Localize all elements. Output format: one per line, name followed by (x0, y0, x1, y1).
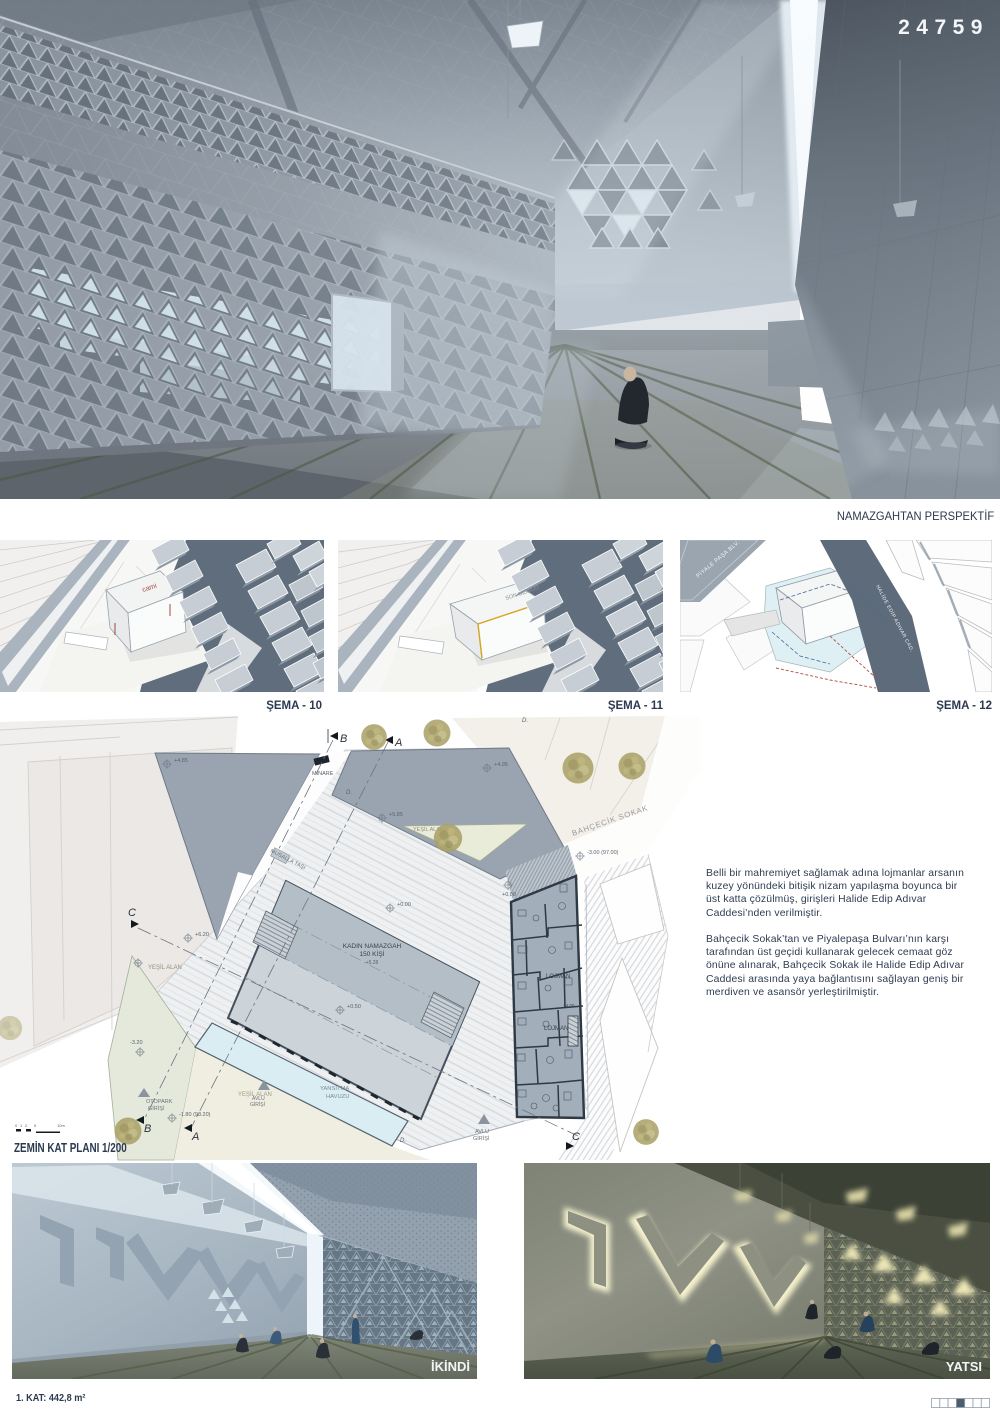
svg-text:ZEMİN KAT PLANI 1/200: ZEMİN KAT PLANI 1/200 (14, 1141, 127, 1156)
svg-text:+4.95: +4.95 (494, 762, 508, 768)
svg-text:2: 2 (25, 1123, 28, 1128)
svg-text:HAVUZU: HAVUZU (326, 1094, 349, 1100)
svg-text:D.: D. (346, 790, 352, 796)
svg-text:KADIN NAMAZGAH: KADIN NAMAZGAH (343, 943, 402, 950)
svg-text:+0.00: +0.00 (397, 902, 411, 908)
svg-text:-1.80 (98.20): -1.80 (98.20) (179, 1112, 211, 1118)
svg-text:LOJMAN: LOJMAN (546, 974, 570, 980)
svg-text:1: 1 (20, 1123, 23, 1128)
svg-text:5: 5 (34, 1123, 37, 1128)
svg-text:B: B (144, 1123, 151, 1135)
svg-text:+0.50: +0.50 (347, 1004, 361, 1010)
svg-text:0: 0 (15, 1123, 18, 1128)
svg-text:B: B (340, 733, 347, 745)
svg-text:YANSITMA: YANSITMA (320, 1086, 349, 1092)
svg-text:İKİNDİ: İKİNDİ (431, 1359, 470, 1374)
svg-text:10m: 10m (57, 1123, 65, 1128)
svg-text:GİRİŞİ: GİRİŞİ (250, 1101, 265, 1108)
svg-text:A: A (191, 1131, 199, 1143)
svg-text:+4.85: +4.85 (174, 758, 188, 764)
svg-text:+4.00: +4.00 (563, 1003, 575, 1008)
svg-text:GİRİŞİ: GİRİŞİ (148, 1105, 165, 1112)
svg-text:YEŞİL ALAN: YEŞİL ALAN (148, 964, 182, 971)
svg-text:AVLU: AVLU (475, 1129, 489, 1135)
svg-text:+5.28: +5.28 (366, 960, 379, 966)
svg-text:C: C (572, 1131, 580, 1143)
svg-text:YATSI: YATSI (946, 1359, 982, 1374)
svg-text:150 KİŞİ: 150 KİŞİ (360, 949, 385, 958)
svg-text:GİRİŞİ: GİRİŞİ (473, 1135, 490, 1142)
svg-text:MİNARE: MİNARE (312, 770, 334, 777)
svg-text:24759: 24759 (898, 16, 989, 39)
svg-text:A: A (394, 737, 402, 749)
svg-text:+5.85: +5.85 (389, 812, 403, 818)
svg-text:-3.00 (97.00): -3.00 (97.00) (587, 850, 619, 856)
svg-text:+0.00: +0.00 (502, 892, 516, 898)
svg-text:D.: D. (522, 718, 528, 724)
svg-text:LOJMAN: LOJMAN (544, 1026, 568, 1032)
svg-text:D.: D. (400, 1138, 406, 1144)
svg-text:-3.20: -3.20 (130, 1040, 143, 1046)
svg-text:OTOPARK: OTOPARK (146, 1099, 173, 1105)
svg-text:+6.20: +6.20 (195, 932, 209, 938)
svg-text:C: C (128, 907, 136, 919)
